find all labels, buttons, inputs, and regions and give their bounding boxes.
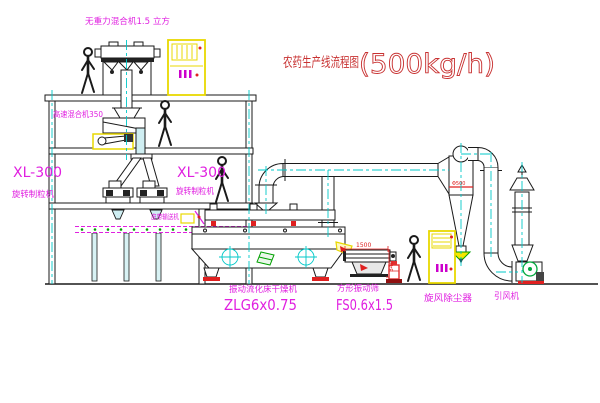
title-text: 农药生产线流程图	[283, 55, 359, 71]
label-gravity-mixer: 无重力混合机1.5 立方	[85, 16, 170, 27]
dim-sieve-length: 1500	[356, 242, 371, 249]
dim-cyclone: Φ500	[452, 181, 465, 187]
discharge-funnel-left	[112, 210, 124, 219]
label-cyclone: 旋风除尘器	[424, 292, 472, 304]
granulator-right	[137, 181, 167, 203]
fan-suction-pipe	[468, 147, 512, 283]
induced-draft-fan	[516, 262, 544, 284]
label-high-speed-mixer: 高速混合机350	[53, 109, 103, 119]
label-sieve-model: FS0.6x1.5	[336, 296, 393, 314]
label-granulator-model-right: XL-300	[177, 165, 226, 181]
control-cabinet-top	[168, 40, 205, 95]
cad-process-flow-drawing: 农药生产线流程图 (500kg/h) 无重力混合机1.5 立方 高速混合机350…	[0, 0, 600, 403]
label-sieve: 方形振动筛	[337, 283, 379, 294]
gravity-free-mixer	[95, 42, 160, 118]
granulator-left	[103, 181, 133, 203]
title-capacity: (500kg/h)	[359, 49, 495, 80]
label-granulator-model-left: XL-300	[13, 165, 62, 181]
label-granulator-right: 旋转制粒机	[176, 186, 214, 197]
label-belt-conveyor: 皮带输送机	[151, 212, 179, 221]
label-dryer: 振动流化床干燥机	[229, 284, 297, 295]
drawing-surface: 农药生产线流程图 (500kg/h) 无重力混合机1.5 立方 高速混合机350…	[0, 0, 600, 403]
label-granulator-left: 旋转制粒机	[12, 189, 54, 200]
label-fan: 引风机	[494, 290, 519, 302]
control-cabinet-right	[429, 231, 455, 283]
worker-figure-roof	[82, 48, 94, 93]
mixer-down-chute	[136, 128, 145, 154]
worker-figure-floor2	[159, 101, 171, 146]
worker-figure-ground	[408, 236, 420, 281]
dim-sieve-height: 340	[388, 260, 395, 272]
label-dryer-model: ZLG6x0.75	[224, 296, 297, 314]
